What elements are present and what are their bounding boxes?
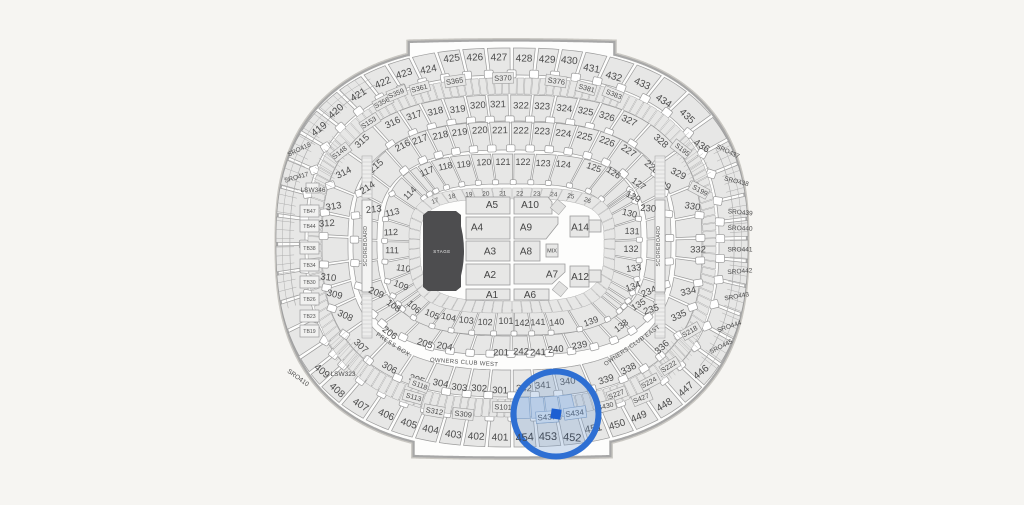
svg-text:132: 132	[623, 244, 638, 254]
svg-text:324: 324	[556, 103, 573, 116]
svg-text:425: 425	[443, 52, 461, 65]
svg-text:A7: A7	[546, 270, 559, 281]
svg-text:430: 430	[560, 55, 578, 68]
svg-text:332: 332	[690, 244, 706, 255]
svg-text:427: 427	[491, 52, 508, 63]
svg-text:230: 230	[640, 203, 657, 215]
svg-text:120: 120	[476, 157, 491, 168]
svg-text:112: 112	[384, 227, 399, 237]
svg-text:A14: A14	[571, 223, 589, 234]
svg-text:140: 140	[549, 316, 565, 328]
svg-text:219: 219	[451, 126, 468, 139]
svg-text:LSW346: LSW346	[301, 187, 326, 194]
svg-text:123: 123	[535, 158, 550, 169]
svg-text:429: 429	[539, 54, 557, 66]
svg-text:SRO440: SRO440	[727, 225, 753, 233]
svg-text:LSW323: LSW323	[331, 371, 356, 378]
svg-text:A8: A8	[520, 247, 533, 258]
svg-text:MIX: MIX	[547, 248, 557, 254]
svg-text:S370: S370	[494, 73, 512, 83]
svg-text:TB19: TB19	[303, 329, 316, 335]
svg-text:312: 312	[319, 218, 335, 230]
svg-text:303: 303	[451, 381, 468, 394]
svg-text:A2: A2	[484, 270, 497, 281]
svg-text:24: 24	[550, 191, 558, 199]
svg-text:A1: A1	[486, 290, 499, 301]
svg-text:401: 401	[492, 432, 509, 443]
svg-text:224: 224	[555, 127, 572, 140]
svg-text:310: 310	[320, 271, 337, 284]
svg-text:119: 119	[456, 158, 471, 169]
svg-text:323: 323	[534, 101, 550, 113]
svg-text:103: 103	[458, 314, 474, 326]
svg-text:SRO441: SRO441	[728, 246, 753, 253]
svg-text:TB44: TB44	[303, 224, 316, 230]
svg-text:A3: A3	[484, 247, 497, 258]
svg-text:A12: A12	[571, 272, 589, 283]
svg-text:240: 240	[547, 344, 564, 356]
svg-text:SCOREBOARD: SCOREBOARD	[363, 226, 369, 267]
svg-text:25: 25	[567, 193, 576, 201]
svg-text:TB38: TB38	[303, 246, 316, 252]
svg-text:122: 122	[515, 157, 530, 167]
svg-text:A4: A4	[471, 223, 484, 234]
svg-text:110: 110	[396, 262, 412, 274]
svg-text:STAGE: STAGE	[433, 249, 451, 254]
svg-text:302: 302	[471, 383, 487, 395]
svg-text:321: 321	[490, 99, 506, 110]
svg-text:213: 213	[365, 204, 382, 217]
svg-text:124: 124	[555, 158, 571, 170]
svg-text:222: 222	[513, 125, 529, 136]
svg-text:221: 221	[492, 125, 508, 136]
svg-text:403: 403	[444, 429, 462, 442]
svg-text:452: 452	[563, 431, 582, 444]
svg-text:A9: A9	[520, 223, 533, 234]
svg-text:201: 201	[493, 347, 509, 358]
svg-text:453: 453	[539, 431, 558, 443]
svg-text:S309: S309	[454, 409, 472, 420]
svg-text:A5: A5	[486, 200, 499, 211]
svg-text:141: 141	[530, 317, 545, 328]
svg-text:220: 220	[472, 125, 488, 137]
svg-text:TB34: TB34	[303, 263, 316, 269]
svg-text:101: 101	[498, 316, 513, 326]
svg-text:S101: S101	[494, 402, 512, 412]
svg-text:402: 402	[468, 431, 486, 443]
svg-text:454: 454	[515, 431, 534, 445]
svg-text:223: 223	[534, 126, 550, 138]
svg-text:A10: A10	[521, 200, 539, 211]
svg-text:121: 121	[495, 157, 510, 167]
svg-text:TB26: TB26	[303, 297, 316, 303]
svg-text:301: 301	[492, 385, 508, 396]
svg-text:111: 111	[385, 245, 399, 255]
svg-text:142: 142	[514, 318, 529, 328]
svg-text:322: 322	[513, 100, 529, 111]
svg-text:241: 241	[530, 347, 546, 359]
svg-text:SCOREBOARD: SCOREBOARD	[656, 226, 662, 267]
svg-text:TB30: TB30	[303, 280, 316, 286]
svg-text:320: 320	[470, 100, 486, 112]
svg-text:133: 133	[626, 262, 642, 274]
svg-text:TB23: TB23	[303, 314, 316, 320]
svg-text:319: 319	[449, 103, 466, 116]
svg-text:A6: A6	[524, 290, 537, 301]
svg-text:426: 426	[466, 52, 484, 64]
svg-text:428: 428	[516, 53, 533, 64]
svg-text:TB47: TB47	[303, 209, 316, 215]
svg-text:131: 131	[624, 226, 639, 237]
svg-text:102: 102	[477, 317, 492, 328]
svg-text:242: 242	[513, 346, 529, 357]
